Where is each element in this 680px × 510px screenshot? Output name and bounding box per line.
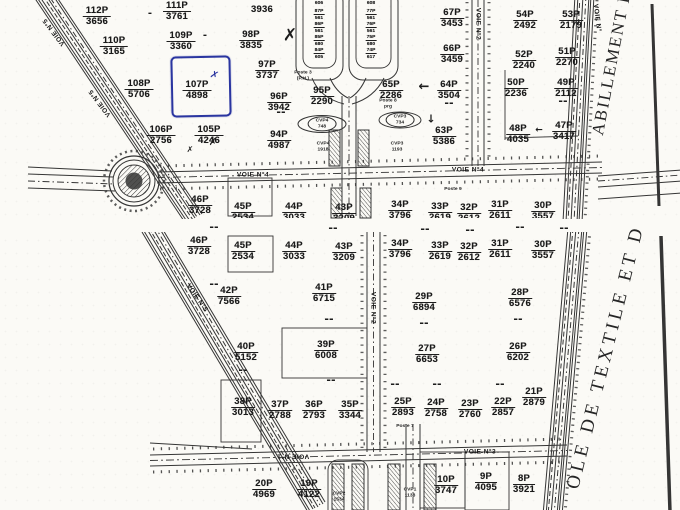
voie-2-road-bottom (362, 230, 385, 452)
parcel-label: 46P 3728 (188, 195, 212, 216)
parcel-area: 3796 (388, 211, 412, 218)
parcel-area: 2611 (488, 211, 512, 218)
parcel-number: 34P (388, 200, 412, 211)
parcel-number: 44P (282, 202, 306, 213)
parcel-area: 2534 (231, 213, 255, 218)
scan-seam (0, 219, 680, 232)
parcel-label: 30P 3557 (531, 201, 555, 218)
parcel-area: 3209 (332, 214, 356, 218)
parcel-area: 2612 (457, 214, 481, 218)
highlight-box-parcel-107p (170, 55, 231, 117)
parcel-number: 33P (428, 202, 452, 213)
parcel-label: 33P 2619 (428, 202, 452, 218)
parcel-label: 31P 2611 (488, 200, 512, 218)
parcel-label: 45P 2534 (231, 202, 255, 218)
parcels-top-dup-layer: 46P 3728 45P 2534 44P 3033 43P 3209 (0, 0, 680, 218)
parcel-area: 3033 (282, 213, 306, 218)
parcel-number: 30P (531, 201, 555, 212)
parcel-number: 45P (231, 202, 255, 213)
diagonal-road-bottom (142, 223, 325, 510)
parcel-number: 32P (457, 203, 481, 214)
parcel-label: 43P 3209 (332, 203, 356, 218)
scanned-cadastral-map: 46P 3728 45P 2534 44P 3033 43P 3209 (0, 0, 680, 510)
parcel-label: 34P 3796 (388, 200, 412, 218)
parcel-area: 3728 (188, 206, 212, 216)
parcel-area: 2619 (428, 213, 452, 218)
parcel-area: 3557 (531, 212, 555, 218)
parcel-number: 43P (332, 203, 356, 214)
parcel-label: 44P 3033 (282, 202, 306, 218)
top-fragment-clip: 46P 3728 45P 2534 44P 3033 43P 3209 (0, 0, 680, 218)
parcel-number: 31P (488, 200, 512, 211)
parcel-number: 46P (188, 195, 212, 206)
parcel-label: 32P 2612 (457, 203, 481, 218)
